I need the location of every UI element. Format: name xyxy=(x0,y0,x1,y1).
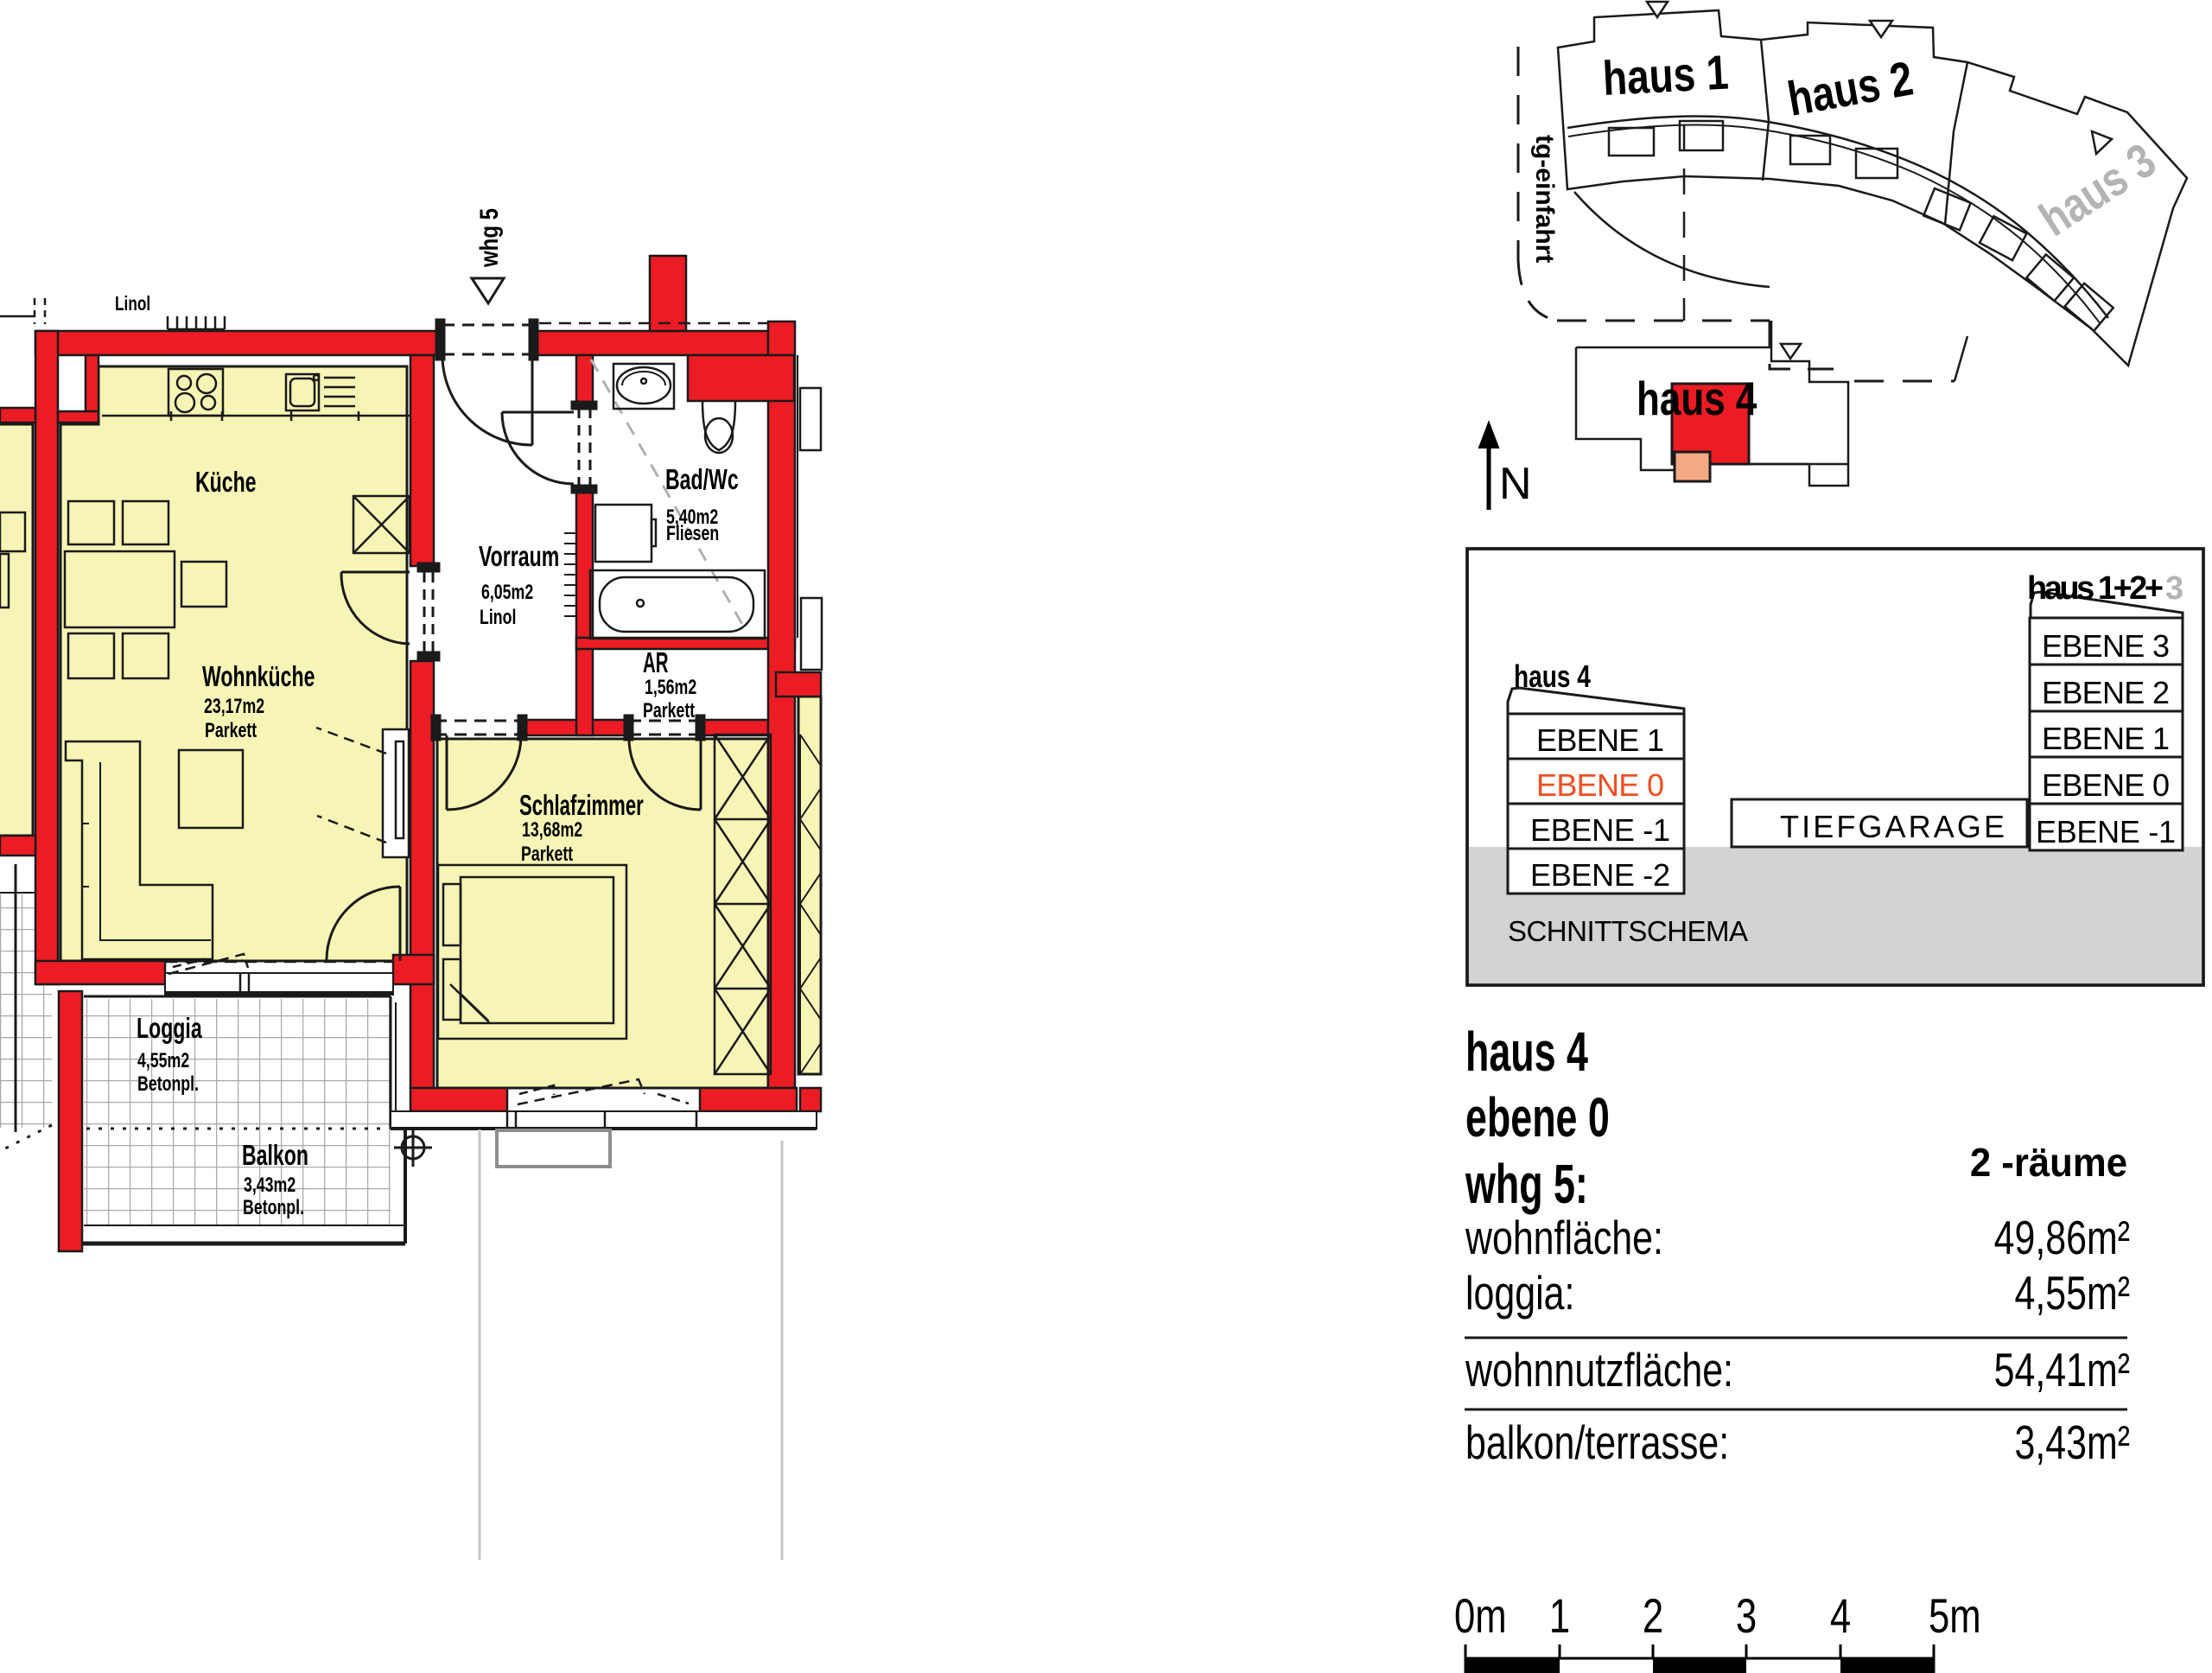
svg-text:wohnfläche:: wohnfläche: xyxy=(1465,1212,1663,1264)
svg-text:Linol: Linol xyxy=(115,294,150,315)
svg-text:4,55m²: 4,55m² xyxy=(2015,1267,2130,1320)
svg-text:TIEFGARAGE: TIEFGARAGE xyxy=(1780,809,2005,844)
svg-text:Parkett: Parkett xyxy=(521,843,573,866)
svg-text:49,86m²: 49,86m² xyxy=(1994,1212,2130,1264)
svg-text:5m: 5m xyxy=(1929,1589,1981,1643)
svg-text:3,43m2: 3,43m2 xyxy=(244,1174,296,1197)
svg-text:54,41m²: 54,41m² xyxy=(1994,1344,2130,1396)
svg-text:0m: 0m xyxy=(1454,1589,1507,1643)
svg-text:6,05m2: 6,05m2 xyxy=(481,582,533,604)
svg-text:Betonpl.: Betonpl. xyxy=(243,1197,304,1219)
svg-text:Fliesen: Fliesen xyxy=(666,523,719,545)
svg-text:3: 3 xyxy=(1736,1589,1757,1643)
svg-text:1,56m2: 1,56m2 xyxy=(645,677,696,699)
svg-text:2: 2 xyxy=(1643,1589,1663,1643)
svg-text:ebene 0: ebene 0 xyxy=(1465,1086,1610,1148)
svg-text:EBENE 1: EBENE 1 xyxy=(1536,722,1664,758)
svg-text:23,17m2: 23,17m2 xyxy=(204,696,264,718)
svg-text:N: N xyxy=(1499,459,1532,509)
svg-text:3: 3 xyxy=(2165,570,2183,607)
svg-text:13,68m2: 13,68m2 xyxy=(522,819,582,842)
svg-text:whg 5:: whg 5: xyxy=(1465,1153,1588,1215)
svg-text:3,43m²: 3,43m² xyxy=(2015,1416,2130,1469)
svg-text:4: 4 xyxy=(1830,1589,1851,1643)
svg-text:Wohnküche: Wohnküche xyxy=(202,661,315,693)
svg-text:haus 4: haus 4 xyxy=(1465,1021,1588,1083)
svg-text:AR: AR xyxy=(643,646,669,678)
svg-text:Linol: Linol xyxy=(480,607,516,629)
svg-text:4,55m2: 4,55m2 xyxy=(137,1050,189,1072)
svg-text:Parkett: Parkett xyxy=(205,720,257,742)
svg-text:wohnnutzfläche:: wohnnutzfläche: xyxy=(1465,1344,1733,1396)
svg-text:SCHNITTSCHEMA: SCHNITTSCHEMA xyxy=(1508,915,1748,947)
svg-text:Vorraum: Vorraum xyxy=(479,541,559,573)
svg-text:Parkett: Parkett xyxy=(643,700,695,722)
svg-text:whg 5: whg 5 xyxy=(474,208,503,268)
svg-text:Balkon: Balkon xyxy=(242,1140,308,1172)
svg-text:EBENE 1: EBENE 1 xyxy=(2042,721,2170,756)
svg-text:Schlafzimmer: Schlafzimmer xyxy=(519,790,644,821)
svg-text:Betonpl.: Betonpl. xyxy=(137,1073,199,1096)
svg-text:EBENE 0: EBENE 0 xyxy=(2042,767,2170,803)
svg-text:tg-einfahrt: tg-einfahrt xyxy=(1530,135,1559,263)
svg-text:EBENE 0: EBENE 0 xyxy=(1536,767,1664,803)
svg-text:haus 1: haus 1 xyxy=(1601,45,1729,105)
svg-text:EBENE -1: EBENE -1 xyxy=(1530,812,1670,848)
svg-text:1: 1 xyxy=(1549,1589,1570,1643)
svg-text:EBENE 3: EBENE 3 xyxy=(2042,628,2170,664)
svg-text:EBENE 2: EBENE 2 xyxy=(2042,675,2170,710)
svg-text:EBENE -2: EBENE -2 xyxy=(1530,857,1670,893)
svg-text:Bad/Wc: Bad/Wc xyxy=(665,464,739,496)
svg-text:haus 1+2+: haus 1+2+ xyxy=(2027,570,2164,607)
svg-text:balkon/terrasse:: balkon/terrasse: xyxy=(1465,1416,1729,1469)
svg-text:Loggia: Loggia xyxy=(137,1013,203,1045)
svg-text:haus 4: haus 4 xyxy=(1514,659,1591,694)
svg-text:Küche: Küche xyxy=(195,467,257,499)
svg-text:EBENE -1: EBENE -1 xyxy=(2036,814,2176,849)
svg-text:loggia:: loggia: xyxy=(1465,1267,1574,1320)
svg-text:haus 4: haus 4 xyxy=(1637,372,1758,425)
svg-text:2 -räume: 2 -räume xyxy=(1970,1140,2127,1185)
